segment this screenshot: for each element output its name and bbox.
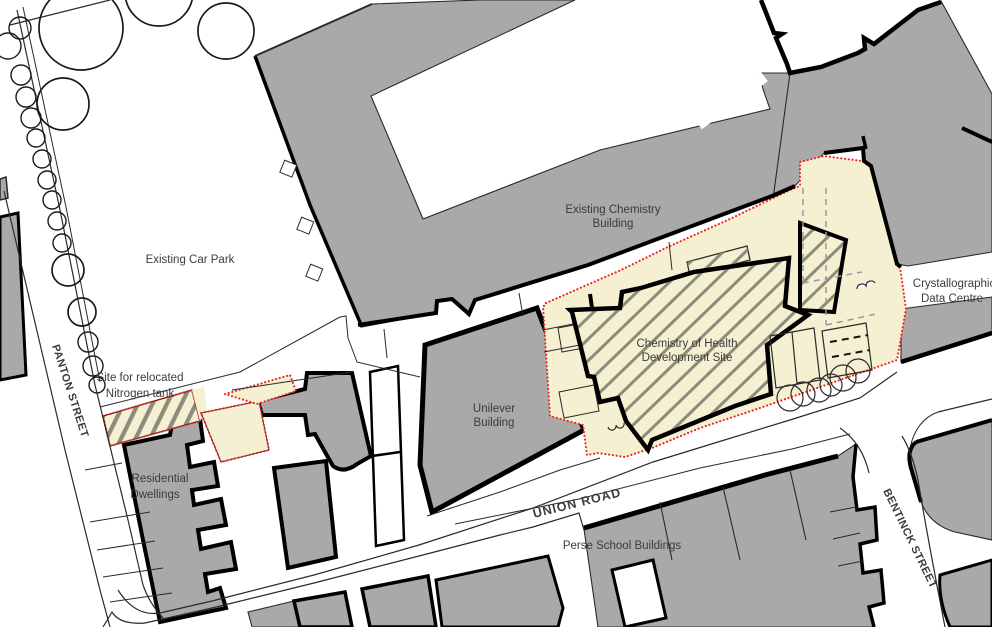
svg-text:Chemistry of Health: Chemistry of Health (637, 338, 738, 350)
svg-text:Unilever: Unilever (473, 403, 515, 415)
svg-text:Dwellings: Dwellings (130, 489, 179, 501)
svg-text:Development Site: Development Site (642, 352, 733, 364)
svg-text:Site for relocated: Site for relocated (97, 372, 184, 384)
svg-text:Data Centre: Data Centre (921, 293, 983, 305)
svg-text:Residential: Residential (132, 473, 189, 485)
svg-text:Crystallographic: Crystallographic (913, 278, 992, 290)
svg-text:Existing Car Park: Existing Car Park (146, 254, 235, 266)
svg-text:Existing Chemistry: Existing Chemistry (565, 204, 660, 216)
svg-text:Building: Building (593, 218, 634, 230)
svg-text:Perse School Buildings: Perse School Buildings (563, 540, 682, 552)
svg-text:Building: Building (474, 417, 515, 429)
svg-text:Nitrogen tank: Nitrogen tank (106, 388, 175, 400)
